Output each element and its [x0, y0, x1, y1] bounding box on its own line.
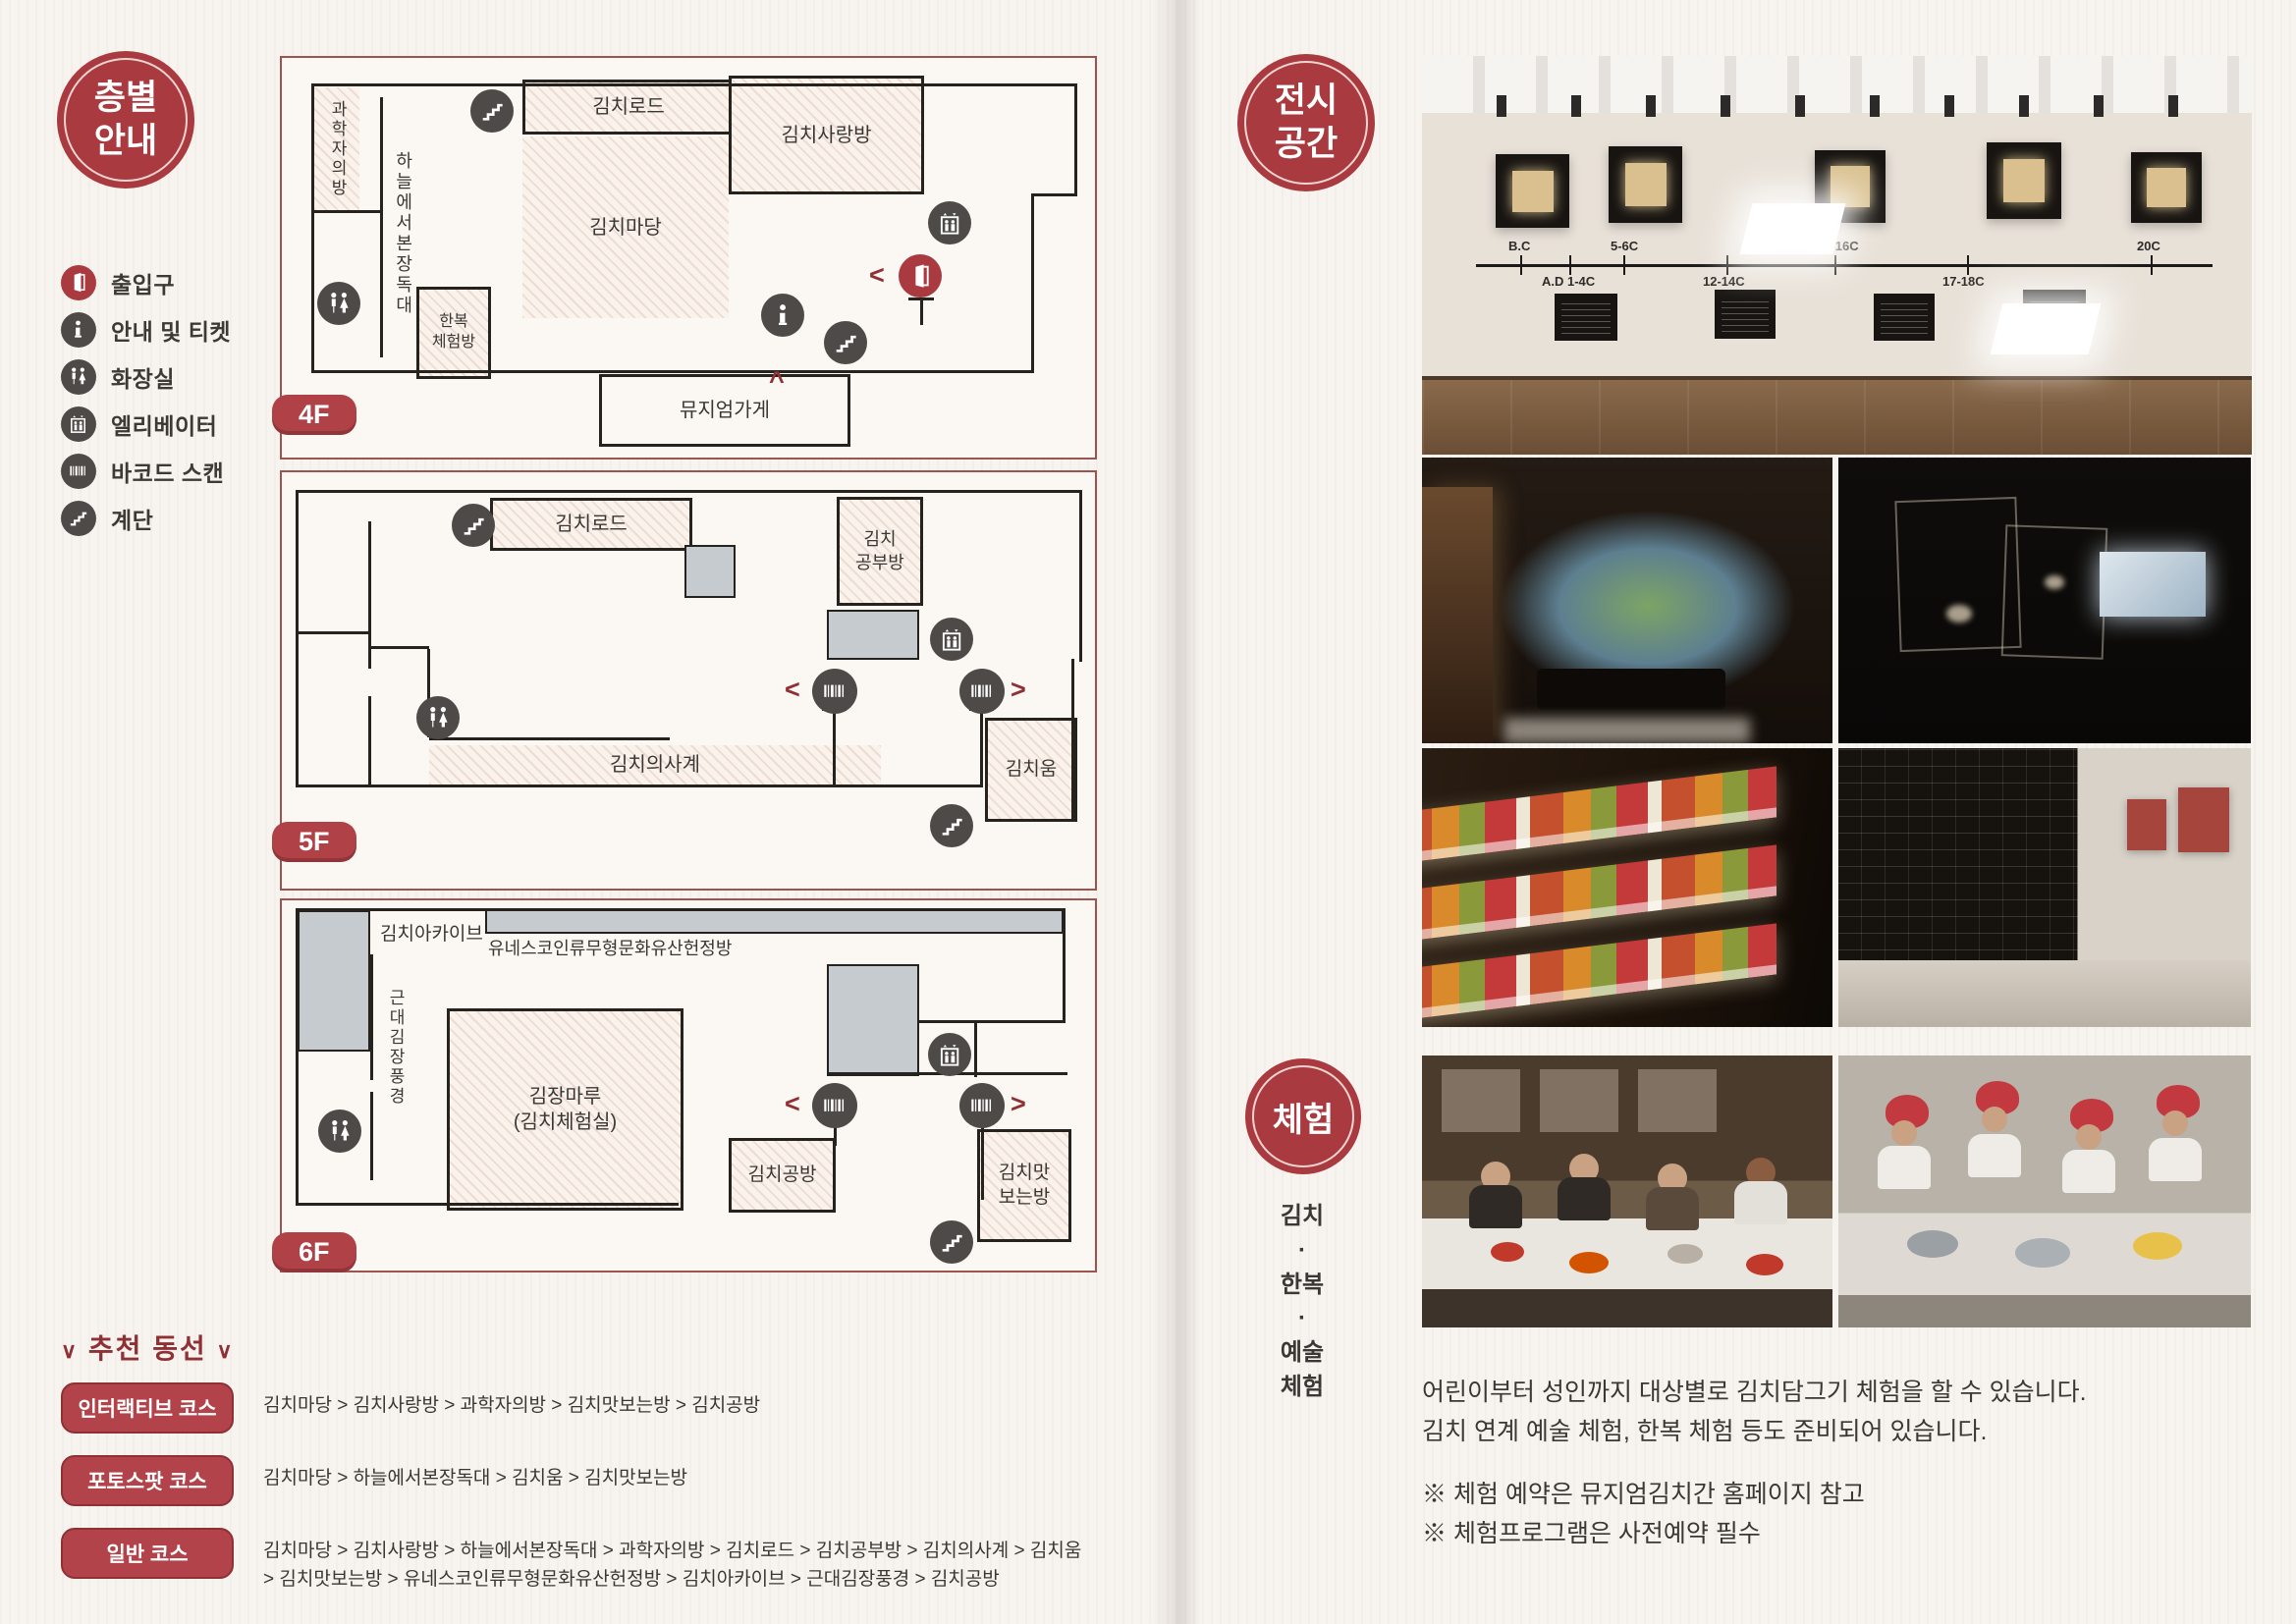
- elevator-icon: [928, 201, 971, 244]
- room-kimchi-road: 김치로드: [522, 80, 735, 135]
- room-kimchi-gongbang: 김치공방: [729, 1138, 836, 1213]
- legend-label: 계단: [111, 502, 153, 535]
- timeline-label: A.D 1-4C: [1542, 274, 1595, 289]
- room-modern-kimjang: 근대김장풍경: [378, 959, 411, 1136]
- floor-map-5f: 김치로드 김치 공부방 김치의사계 김치움 < > 5F: [280, 470, 1097, 891]
- barcode-scan-icon: [61, 454, 96, 489]
- photo-decor: [2100, 552, 2206, 617]
- photo-decor: [2178, 787, 2229, 852]
- floor-tag-label: 4F: [299, 400, 330, 429]
- entrance-icon: [61, 265, 96, 300]
- experience-side-label: 김치 · 한복 · 예술 체험: [1273, 1200, 1332, 1405]
- room-kimchi-study: 김치 공부방: [837, 497, 923, 606]
- experience-badge: 체험: [1245, 1058, 1361, 1174]
- room-unesco: 유네스코인류무형문화유산헌정방: [488, 936, 1038, 963]
- room-label: 김치로드: [555, 512, 628, 537]
- exhibition-space-badge: 전시 공간: [1237, 54, 1375, 191]
- legend-item-barcode: 바코드 스캔: [61, 452, 231, 491]
- barcode-scan-icon: [959, 1083, 1005, 1128]
- room-label: 근대김장풍경: [384, 989, 406, 1107]
- info-ticket-icon: [761, 294, 804, 337]
- course-name-badge: 일반 코스: [61, 1528, 234, 1579]
- photo-decor: [1946, 605, 1972, 623]
- course-general: 일반 코스 김치마당 > 김치사랑방 > 하늘에서본장독대 > 과학자의방 > …: [61, 1528, 1102, 1595]
- gray-block: [684, 545, 736, 598]
- scan-arrow-left: <: [785, 1091, 800, 1117]
- map-legend: 출입구 안내 및 티켓 화장실 엘리베이터 바코드 스캔 계단: [61, 263, 231, 546]
- room-label: 김치사랑방: [782, 123, 872, 148]
- legend-label: 엘리베이터: [111, 407, 217, 441]
- light-panel: [1740, 203, 1846, 254]
- room-kimchi-tasting: 김치맛 보는방: [977, 1129, 1071, 1242]
- legend-item-entrance: 출입구: [61, 263, 231, 302]
- info-ticket-icon: [61, 312, 96, 348]
- photo-decor: [2001, 524, 2108, 660]
- exhibition-photo-dark-room: [1838, 458, 2251, 743]
- exhibit-box: [1987, 142, 2061, 219]
- text-panel: [1555, 294, 1617, 341]
- room-hanbok: 한복 체험방: [416, 287, 491, 379]
- stairs-icon: [930, 1220, 973, 1264]
- legend-item-restroom: 화장실: [61, 357, 231, 397]
- scan-arrow-left: <: [785, 677, 800, 703]
- exhibit-box: [1496, 154, 1569, 228]
- course-interactive: 인터랙티브 코스 김치마당 > 김치사랑방 > 과학자의방 > 김치맛보는방 >…: [61, 1382, 1102, 1434]
- restroom-icon: [318, 1110, 361, 1153]
- elevator-icon: [928, 1033, 971, 1076]
- legend-label: 바코드 스캔: [111, 455, 224, 488]
- timeline-label: 17-18C: [1942, 274, 1985, 289]
- floor-map-6f: 김치아카이브 유네스코인류무형문화유산헌정방 근대김장풍경 김장마루 (김치체험…: [280, 898, 1097, 1272]
- course-photospot: 포토스팟 코스 김치마당 > 하늘에서본장독대 > 김치움 > 김치맛보는방: [61, 1455, 1102, 1506]
- barcode-scan-icon: [812, 669, 857, 714]
- room-label: 뮤지엄가게: [680, 398, 770, 423]
- exhibition-photo-writing-wall: [1838, 748, 2251, 1027]
- timeline-label: 5-6C: [1611, 239, 1638, 253]
- room-label: 하늘에서본장독대: [391, 151, 413, 316]
- room-label: 유네스코인류무형문화유산헌정방: [488, 938, 732, 960]
- legend-label: 화장실: [111, 360, 175, 394]
- room-kimchi-road: 김치로드: [490, 498, 692, 551]
- experience-description: 어린이부터 성인까지 대상별로 김치담그기 체험을 할 수 있습니다. 김치 연…: [1422, 1373, 2227, 1451]
- room-sky-jangdokdae: 하늘에서본장독대: [386, 103, 419, 363]
- experience-notes: ※ 체험 예약은 뮤지엄김치간 홈페이지 참고 ※ 체험프로그램은 사전예약 필…: [1422, 1475, 2227, 1553]
- room-label: 김치로드: [592, 94, 665, 120]
- room-science: 과학자의방: [314, 87, 359, 210]
- photo-decor: [1422, 487, 1493, 743]
- course-route: 김치마당 > 김치사랑방 > 과학자의방 > 김치맛보는방 > 김치공방: [263, 1382, 760, 1420]
- floor-tag-6f: 6F: [272, 1232, 356, 1272]
- barcode-scan-icon: [812, 1083, 857, 1128]
- gray-block: [298, 910, 370, 1052]
- exhibition-photo-kimchi-shelves: [1422, 748, 1832, 1027]
- floor-tag-5f: 5F: [272, 822, 356, 862]
- legend-label: 안내 및 티켓: [111, 313, 231, 347]
- stairs-icon: [824, 321, 867, 364]
- floor-map-4f: 과학자의방 하늘에서본장독대 김치로드 김치사랑방 김치마당 한복 체험방 뮤지…: [280, 56, 1097, 460]
- barcode-scan-icon: [959, 669, 1005, 714]
- text-panel: [1715, 290, 1776, 339]
- legend-item-elevator: 엘리베이터: [61, 405, 231, 444]
- photo-decor: [1537, 669, 1725, 710]
- courses-title: ∨ 추천 동선 ∨: [61, 1327, 1102, 1367]
- course-name-badge: 인터랙티브 코스: [61, 1382, 234, 1434]
- exhibition-photo-projection: [1422, 458, 1832, 743]
- room-label: 김치의사계: [610, 752, 700, 778]
- photo-decor: [1504, 718, 1751, 743]
- stairs-icon: [930, 804, 973, 847]
- stairs-icon: [452, 504, 495, 547]
- recommended-courses: ∨ 추천 동선 ∨ 인터랙티브 코스 김치마당 > 김치사랑방 > 과학자의방 …: [61, 1327, 1102, 1616]
- chevron-deco: ∨: [61, 1338, 79, 1363]
- exhibit-box: [1609, 146, 1682, 223]
- gray-block: [827, 964, 919, 1076]
- room-kimjang-maru: 김장마루 (김치체험실): [447, 1008, 683, 1211]
- experience-photo-children: [1838, 1056, 2251, 1327]
- room-label: 한복 체험방: [432, 312, 475, 353]
- elevator-icon: [61, 406, 96, 442]
- legend-item-info: 안내 및 티켓: [61, 310, 231, 350]
- photo-decor: [1422, 844, 1777, 942]
- room-label: 김치 공부방: [855, 528, 904, 574]
- chevron-deco: ∨: [217, 1338, 235, 1363]
- room-kimchi-sarangbang: 김치사랑방: [729, 76, 924, 194]
- restroom-icon: [416, 696, 460, 739]
- timeline-label: 12-14C: [1703, 274, 1745, 289]
- gray-block: [827, 610, 919, 660]
- timeline-label: 20C: [2137, 239, 2160, 253]
- timeline-line: [1476, 264, 2213, 267]
- floor-tag-label: 6F: [299, 1237, 330, 1267]
- photo-decor: [1422, 766, 1777, 863]
- room-kimchi-um: 김치움: [985, 718, 1077, 822]
- exhibition-photo-main: B.C 5-6C 15-16C 20C A.D 1-4C 12-14C 17-1…: [1422, 56, 2252, 455]
- experience-photo-adults: [1422, 1056, 1832, 1327]
- stairs-icon: [470, 89, 514, 133]
- experience-badge-label: 체험: [1273, 1093, 1335, 1141]
- course-route: 김치마당 > 김치사랑방 > 하늘에서본장독대 > 과학자의방 > 김치로드 >…: [263, 1528, 1088, 1595]
- room-label: 김치공방: [748, 1164, 817, 1188]
- room-museum-shop: 뮤지엄가게: [599, 374, 850, 447]
- course-name-badge: 포토스팟 코스: [61, 1455, 234, 1506]
- restroom-icon: [61, 359, 96, 395]
- light-panel: [1991, 303, 2102, 354]
- page-fold: [1151, 0, 1202, 1624]
- elevator-icon: [930, 618, 973, 661]
- room-label: 김치움: [1006, 758, 1057, 783]
- scan-arrow-right: >: [1011, 1091, 1026, 1117]
- floor-guide-badge-label: 층별 안내: [94, 77, 157, 163]
- floor-tag-label: 5F: [299, 827, 330, 856]
- stairs-icon: [61, 501, 96, 536]
- exhibition-badge-label: 전시 공간: [1275, 80, 1338, 166]
- course-route: 김치마당 > 하늘에서본장독대 > 김치움 > 김치맛보는방: [263, 1455, 687, 1492]
- room-label: 김치아카이브: [380, 923, 483, 947]
- room-label: 김치마당: [589, 215, 662, 241]
- room-kimchi-four-seasons: 김치의사계: [429, 745, 881, 785]
- brochure-spread: 층별 안내 출입구 안내 및 티켓 화장실 엘리베이터 바코드 스캔 계단: [0, 0, 2296, 1624]
- legend-item-stairs: 계단: [61, 499, 231, 538]
- photo-decor: [1838, 748, 2078, 966]
- room-kimchi-madang: 김치마당: [522, 136, 729, 318]
- entrance-arrow-left: <: [869, 262, 885, 289]
- room-label: 김치맛 보는방: [999, 1162, 1050, 1210]
- entrance-icon: [899, 254, 942, 298]
- photo-decor: [2127, 799, 2166, 850]
- room-label: 과학자의방: [326, 100, 348, 198]
- courses-title-text: 추천 동선: [88, 1333, 207, 1364]
- photo-decor: [2045, 575, 2064, 589]
- photo-decor: [1422, 923, 1777, 1020]
- legend-label: 출입구: [111, 266, 175, 299]
- scan-arrow-right: >: [1011, 677, 1026, 703]
- photo-decor: [1432, 95, 2242, 117]
- photo-decor: [1838, 960, 2251, 1027]
- timeline-label: B.C: [1508, 239, 1530, 253]
- photo-decor: [1422, 376, 2252, 455]
- restroom-icon: [317, 282, 360, 325]
- entrance-arrow-up: ^: [769, 368, 785, 395]
- floor-guide-badge: 층별 안내: [57, 51, 194, 189]
- exhibit-box: [2131, 152, 2202, 223]
- text-panel: [1874, 294, 1935, 341]
- floor-tag-4f: 4F: [272, 395, 356, 435]
- room-label: 김장마루 (김치체험실): [514, 1084, 617, 1135]
